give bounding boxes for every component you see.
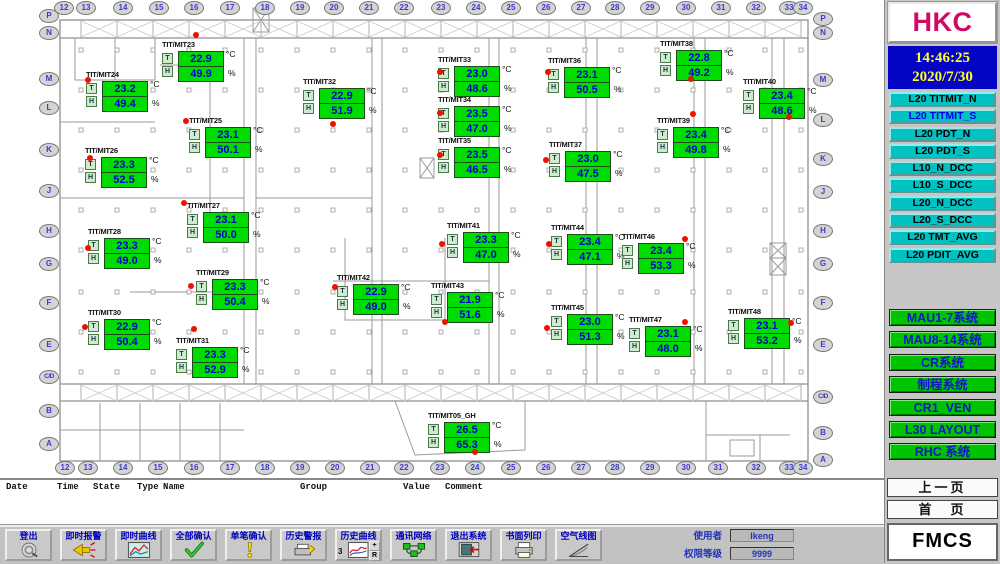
grid-bubble: B — [39, 404, 59, 418]
grid-bubble: 14 — [113, 1, 133, 15]
alarm-dot — [786, 114, 792, 120]
exit-icon — [447, 541, 490, 559]
grid-bubble: 29 — [640, 1, 660, 15]
alarm-dot — [442, 319, 448, 325]
alarm-dot — [85, 245, 91, 251]
grid-bubble: G — [813, 257, 833, 271]
humidity-tag: H — [196, 294, 207, 305]
sensor-values: 23.547.0 — [454, 106, 500, 137]
grid-bubble: 19 — [290, 1, 310, 15]
grid-bubble: C/D — [813, 390, 833, 404]
unit-percent: % — [504, 83, 512, 93]
sensor-name: TIT/MIT35 — [438, 136, 471, 145]
sensor-name: TIT/MIT28 — [88, 227, 121, 236]
alarm-dot — [330, 121, 336, 127]
system-button[interactable]: MAU8-14系统 — [889, 331, 996, 348]
logout-button[interactable]: 登出 — [5, 529, 52, 561]
grid-bubble: B — [813, 426, 833, 440]
temp-value: 26.5 — [445, 423, 489, 437]
unit-percent: % — [497, 309, 505, 319]
sensor-name: TIT/MIT45 — [551, 303, 584, 312]
history-trend-button[interactable]: 历史曲线3+R — [335, 529, 382, 561]
grid-bubble: 22 — [394, 461, 414, 475]
alarm-column-header: Group — [300, 482, 327, 492]
temp-tag: T — [629, 328, 640, 339]
unit-percent: % — [504, 164, 512, 174]
alarm-dot — [82, 324, 88, 330]
temp-tag: T — [743, 90, 754, 101]
alarm-column-header: Value — [403, 482, 430, 492]
humidity-tag: H — [337, 299, 348, 310]
humidity-value: 50.5 — [565, 82, 609, 97]
temp-value: 22.9 — [354, 285, 398, 299]
mini-button[interactable]: + — [369, 541, 380, 551]
unit-percent: % — [253, 229, 261, 239]
temp-value: 23.3 — [105, 239, 149, 253]
temp-value: 23.0 — [455, 67, 499, 81]
humidity-value: 49.4 — [103, 96, 147, 111]
mini-button[interactable]: R — [369, 551, 380, 561]
humidity-value: 47.0 — [464, 247, 508, 262]
grid-bubble: 31 — [708, 461, 728, 475]
alarm-dot — [191, 326, 197, 332]
temp-value: 23.4 — [760, 89, 804, 103]
humidity-value: 49.9 — [179, 66, 223, 81]
grid-bubble: 30 — [676, 461, 696, 475]
unit-celsius: °C — [495, 290, 505, 300]
humidity-tag: H — [551, 249, 562, 260]
temp-tag: T — [622, 245, 633, 256]
sensor-name: TIT/MIT05_GH — [428, 411, 476, 420]
sensor-values: 23.048.6 — [454, 66, 500, 97]
temp-value: 23.1 — [204, 213, 248, 227]
alarm-column-header: Type — [137, 482, 159, 492]
alarm-dot — [688, 76, 694, 82]
grid-bubble: M — [813, 73, 833, 87]
unit-celsius: °C — [226, 49, 236, 59]
unit-percent: % — [617, 331, 625, 341]
grid-bubble: M — [39, 72, 59, 86]
sensor-values: 22.849.2 — [676, 50, 722, 81]
humidity-value: 49.2 — [677, 65, 721, 80]
unit-celsius: °C — [613, 149, 623, 159]
sensor-values: 23.150.5 — [564, 67, 610, 98]
system-button[interactable]: L30 LAYOUT — [889, 421, 996, 438]
system-button[interactable]: CR系统 — [889, 354, 996, 371]
humidity-value: 48.0 — [646, 341, 690, 356]
temp-tag: T — [162, 53, 173, 64]
humidity-tag: H — [548, 82, 559, 93]
unit-percent: % — [228, 68, 236, 78]
unit-percent: % — [615, 168, 623, 178]
grid-bubble: P — [813, 12, 833, 26]
system-button[interactable]: 制程系统 — [889, 376, 996, 393]
logout-icon — [7, 541, 50, 559]
nav-button[interactable]: L20 TITMIT_N — [889, 92, 996, 107]
humidity-tag: H — [428, 437, 439, 448]
unit-percent: % — [369, 105, 377, 115]
nav-button[interactable]: L20 PDT_N — [889, 127, 996, 142]
toolbar-button-label: 登出 — [7, 531, 50, 541]
alarm-column-header: Time — [57, 482, 79, 492]
humidity-tag: H — [189, 142, 200, 153]
unit-celsius: °C — [367, 86, 377, 96]
grid-bubble: 25 — [501, 461, 521, 475]
sensor-values: 22.949.9 — [178, 51, 224, 82]
trend-count-label: 3 — [338, 547, 342, 556]
grid-bubble: 18 — [255, 1, 275, 15]
grid-bubble: 21 — [360, 461, 380, 475]
unit-celsius: °C — [260, 277, 270, 287]
sensor-name: TIT/MIT29 — [196, 268, 229, 277]
nav-button[interactable]: L20 PDIT_AVG — [889, 248, 996, 263]
temp-value: 23.2 — [103, 82, 147, 96]
temp-value: 21.9 — [448, 293, 492, 307]
trend-icon — [117, 541, 160, 559]
grid-bubble: 14 — [113, 461, 133, 475]
sensor-values: 26.565.3 — [444, 422, 490, 453]
system-button[interactable]: CR1_VEN — [889, 399, 996, 416]
sensor-values: 23.051.3 — [567, 314, 613, 345]
temp-tag: T — [88, 321, 99, 332]
grid-bubble: K — [813, 152, 833, 166]
unit-celsius: °C — [807, 86, 817, 96]
grid-bubble: 18 — [255, 461, 275, 475]
grid-bubble: 20 — [325, 461, 345, 475]
grid-bubble: 28 — [605, 1, 625, 15]
sensor-name: TIT/MIT27 — [187, 201, 220, 210]
sensor-name: TIT/MIT41 — [447, 221, 480, 230]
alarm-list: DateTimeStateTypeNameGroupValueComment — [0, 478, 884, 525]
humidity-value: 50.4 — [105, 334, 149, 349]
sensor-name: TIT/MIT42 — [337, 273, 370, 282]
user-value: lkeng — [730, 529, 794, 542]
alarm-dot — [682, 319, 688, 325]
unit-celsius: °C — [615, 312, 625, 322]
grid-bubble: 32 — [746, 1, 766, 15]
unit-celsius: °C — [251, 210, 261, 220]
unit-celsius: °C — [724, 48, 734, 58]
sensor-values: 23.352.9 — [192, 347, 238, 378]
toolbar-button-label: 通讯网络 — [392, 531, 435, 541]
toolbar-button-label: 历史曲线 — [337, 531, 380, 541]
system-button-list: MAU1-7系统MAU8-14系统CR系统制程系统CR1_VENL30 LAYO… — [889, 309, 996, 466]
alarm-dot — [690, 111, 696, 117]
temp-tag: T — [337, 286, 348, 297]
humidity-value: 49.0 — [354, 299, 398, 314]
unit-percent: % — [154, 255, 162, 265]
nav-button[interactable]: L20 TMT_AVG — [889, 230, 996, 245]
humidity-value: 50.1 — [206, 142, 250, 157]
nav-button[interactable]: L20_S_DCC — [889, 213, 996, 228]
temp-tag: T — [187, 214, 198, 225]
unit-percent: % — [494, 439, 502, 449]
grid-bubble: 12 — [55, 461, 75, 475]
grid-bubble: N — [39, 26, 59, 40]
humidity-tag: H — [438, 121, 449, 132]
sensor-values: 23.448.6 — [759, 88, 805, 119]
grid-bubble: C/D — [39, 370, 59, 384]
sensor-name: TIT/MIT32 — [303, 77, 336, 86]
toolbar-button-label: 全部确认 — [172, 531, 215, 541]
sensor-name: TIT/MIT26 — [85, 146, 118, 155]
unit-celsius: °C — [253, 125, 263, 135]
sensor-values: 22.949.0 — [353, 284, 399, 315]
temp-value: 23.3 — [102, 158, 146, 172]
logo-text: HKC — [913, 7, 973, 37]
alarm-dot — [437, 69, 443, 75]
grid-bubble: 30 — [676, 1, 696, 15]
grid-bubble: K — [39, 143, 59, 157]
humidity-tag: H — [88, 334, 99, 345]
temp-value: 22.9 — [105, 320, 149, 334]
temp-value: 23.5 — [455, 107, 499, 121]
alarm-dot — [85, 77, 91, 83]
unit-celsius: °C — [150, 79, 160, 89]
unit-percent: % — [723, 144, 731, 154]
system-button[interactable]: MAU1-7系统 — [889, 309, 996, 326]
temp-tag: T — [196, 281, 207, 292]
nav-button[interactable]: L10_S_DCC — [889, 178, 996, 193]
realtime-alarm-button[interactable]: 即时报警 — [60, 529, 107, 561]
humidity-tag: H — [162, 66, 173, 77]
grid-bubble: H — [39, 224, 59, 238]
grid-bubble: 24 — [465, 461, 485, 475]
grid-bubble: 25 — [501, 1, 521, 15]
ack-all-icon — [172, 541, 215, 559]
unit-celsius: °C — [721, 125, 731, 135]
humidity-value: 51.6 — [448, 307, 492, 322]
sensor-name: TIT/MIT46 — [622, 232, 655, 241]
humidity-value: 65.3 — [445, 437, 489, 452]
temp-value: 23.1 — [646, 327, 690, 341]
toolbar-button-label: 空气线图 — [557, 531, 600, 541]
sensor-values: 23.349.0 — [104, 238, 150, 269]
sensor-values: 23.453.3 — [638, 243, 684, 274]
humidity-tag: H — [743, 103, 754, 114]
humidity-tag: H — [85, 172, 96, 183]
grid-bubble: E — [813, 338, 833, 352]
comm-network-button[interactable]: 通讯网络 — [390, 529, 437, 561]
alarm-dot — [437, 110, 443, 116]
grid-bubble: A — [39, 437, 59, 451]
clock: 14:46:25 2020/7/30 — [888, 46, 997, 89]
humidity-tag: H — [88, 253, 99, 264]
sensor-values: 21.951.6 — [447, 292, 493, 323]
unit-percent: % — [688, 260, 696, 270]
humidity-value: 47.1 — [568, 249, 612, 264]
grid-bubble: J — [39, 184, 59, 198]
temp-tag: T — [549, 153, 560, 164]
sensor-name: TIT/MIT43 — [431, 281, 464, 290]
sensor-name: TIT/MIT48 — [728, 307, 761, 316]
humidity-value: 50.4 — [213, 294, 257, 309]
humidity-value: 50.0 — [204, 227, 248, 242]
temp-tag: T — [303, 90, 314, 101]
unit-celsius: °C — [492, 420, 502, 430]
grid-bubble: G — [39, 257, 59, 271]
sensor-values: 22.951.9 — [319, 88, 365, 119]
temp-value: 23.3 — [213, 280, 257, 294]
humidity-tag: H — [622, 258, 633, 269]
nav-button[interactable]: L20_N_DCC — [889, 196, 996, 211]
sensor-name: TIT/MIT36 — [548, 56, 581, 65]
grid-bubble: 34 — [793, 461, 813, 475]
unit-celsius: °C — [152, 236, 162, 246]
sensor-values: 23.546.5 — [454, 147, 500, 178]
clock-time: 14:46:25 — [888, 49, 997, 68]
toolbar-button-label: 即时曲线 — [117, 531, 160, 541]
humidity-value: 49.0 — [105, 253, 149, 268]
sensor-name: TIT/MIT25 — [189, 116, 222, 125]
alarm-dot — [682, 236, 688, 242]
ack-one-icon — [227, 541, 270, 559]
grid-bubble: 22 — [394, 1, 414, 15]
temp-tag: T — [428, 424, 439, 435]
unit-celsius: °C — [502, 104, 512, 114]
sensor-values: 23.150.0 — [203, 212, 249, 243]
temp-tag: T — [728, 320, 739, 331]
temp-tag: T — [551, 236, 562, 247]
temp-tag: T — [189, 129, 200, 140]
sensor-name: TIT/MIT33 — [438, 55, 471, 64]
nav-button[interactable]: L20 PDT_S — [889, 144, 996, 159]
humidity-tag: H — [86, 96, 97, 107]
fmcs-label: FMCS — [887, 523, 998, 561]
unit-percent: % — [809, 105, 817, 115]
unit-celsius: °C — [152, 317, 162, 327]
sensor-values: 23.150.1 — [205, 127, 251, 158]
humidity-value: 49.8 — [674, 142, 718, 157]
temp-value: 22.8 — [677, 51, 721, 65]
humidity-value: 47.0 — [455, 121, 499, 136]
temp-tag: T — [657, 129, 668, 140]
grid-bubble: 16 — [184, 461, 204, 475]
alarm-dot — [543, 157, 549, 163]
alarm-icon — [62, 541, 105, 559]
sensor-values: 23.350.4 — [212, 279, 258, 310]
grid-bubble: 32 — [746, 461, 766, 475]
ack-all-button[interactable]: 全部确认 — [170, 529, 217, 561]
toolbar-button-label: 即时报警 — [62, 531, 105, 541]
sensor-name: TIT/MIT39 — [657, 116, 690, 125]
temp-tag: T — [447, 234, 458, 245]
grid-bubble: 28 — [605, 461, 625, 475]
grid-bubble: A — [813, 453, 833, 467]
unit-percent: % — [614, 84, 622, 94]
unit-celsius: °C — [149, 155, 159, 165]
nav-button[interactable]: L10_N_DCC — [889, 161, 996, 176]
temp-value: 23.1 — [565, 68, 609, 82]
temp-tag: T — [551, 316, 562, 327]
alarm-dot — [87, 155, 93, 161]
right-panel: HKC 14:46:25 2020/7/30 L20 TITMIT_NL20 T… — [884, 0, 1000, 563]
unit-celsius: °C — [502, 64, 512, 74]
humidity-tag: H — [551, 329, 562, 340]
alarm-dot — [193, 32, 199, 38]
history-alarm-button[interactable]: 历史警报 — [280, 529, 327, 561]
clock-date: 2020/7/30 — [888, 68, 997, 87]
grid-bubble: 31 — [711, 1, 731, 15]
humidity-tag: H — [728, 333, 739, 344]
alarm-column-header: Name — [163, 482, 185, 492]
alarm-column-header: State — [93, 482, 120, 492]
ack-single-button[interactable]: 单笔确认 — [225, 529, 272, 561]
exit-system-button[interactable]: 退出系统 — [445, 529, 492, 561]
level-value: 9999 — [730, 547, 794, 560]
temp-tag: T — [176, 349, 187, 360]
humidity-tag: H — [549, 166, 560, 177]
system-button[interactable]: RHC 系统 — [889, 443, 996, 460]
sensor-values: 22.950.4 — [104, 319, 150, 350]
humidity-tag: H — [431, 307, 442, 318]
sensor-values: 23.449.8 — [673, 127, 719, 158]
humidity-tag: H — [303, 103, 314, 114]
humidity-value: 48.6 — [760, 103, 804, 118]
unit-percent: % — [794, 335, 802, 345]
grid-bubble: 34 — [793, 1, 813, 15]
unit-percent: % — [242, 364, 250, 374]
humidity-value: 53.3 — [639, 258, 683, 273]
toolbar-button-label: 单笔确认 — [227, 531, 270, 541]
temp-value: 23.3 — [464, 233, 508, 247]
grid-bubble: 26 — [536, 461, 556, 475]
grid-bubble: 15 — [149, 1, 169, 15]
sensor-name: TIT/MIT34 — [438, 95, 471, 104]
print-button[interactable]: 书面列印 — [500, 529, 547, 561]
history-alarm-icon — [282, 541, 325, 559]
grid-bubble: 21 — [359, 1, 379, 15]
page-button[interactable]: 首 页 — [887, 500, 998, 519]
grid-bubble: F — [39, 296, 59, 310]
nav-button[interactable]: L20 TITMIT_S — [889, 109, 996, 124]
psychrometric-button[interactable]: 空气线图 — [555, 529, 602, 561]
unit-celsius: °C — [511, 230, 521, 240]
alarm-dot — [788, 320, 794, 326]
humidity-value: 53.2 — [745, 333, 789, 348]
humidity-tag: H — [447, 247, 458, 258]
unit-percent: % — [513, 249, 521, 259]
sensor-name: TIT/MIT37 — [549, 140, 582, 149]
sensor-values: 23.249.4 — [102, 81, 148, 112]
page-button[interactable]: 上一页 — [887, 478, 998, 497]
temp-value: 22.9 — [179, 52, 223, 66]
unit-percent: % — [152, 98, 160, 108]
temp-value: 23.0 — [568, 315, 612, 329]
grid-bubble: 20 — [324, 1, 344, 15]
humidity-tag: H — [187, 227, 198, 238]
unit-celsius: °C — [240, 345, 250, 355]
unit-celsius: °C — [502, 145, 512, 155]
temp-value: 23.3 — [193, 348, 237, 362]
alarm-dot — [472, 449, 478, 455]
grid-bubble: F — [813, 296, 833, 310]
humidity-tag: H — [438, 162, 449, 173]
humidity-value: 48.6 — [455, 81, 499, 96]
sensor-name: TIT/MIT38 — [660, 39, 693, 48]
alarm-dot — [332, 284, 338, 290]
grid-bubble: 13 — [78, 461, 98, 475]
humidity-tag: H — [176, 362, 187, 373]
humidity-tag: H — [657, 142, 668, 153]
temp-value: 23.1 — [206, 128, 250, 142]
realtime-trend-button[interactable]: 即时曲线 — [115, 529, 162, 561]
page-button-list: 上一页首 页 — [887, 478, 998, 522]
psychro-icon — [557, 541, 600, 559]
building-outline — [60, 20, 808, 461]
unit-celsius: °C — [401, 282, 411, 292]
temp-tag: T — [86, 83, 97, 94]
